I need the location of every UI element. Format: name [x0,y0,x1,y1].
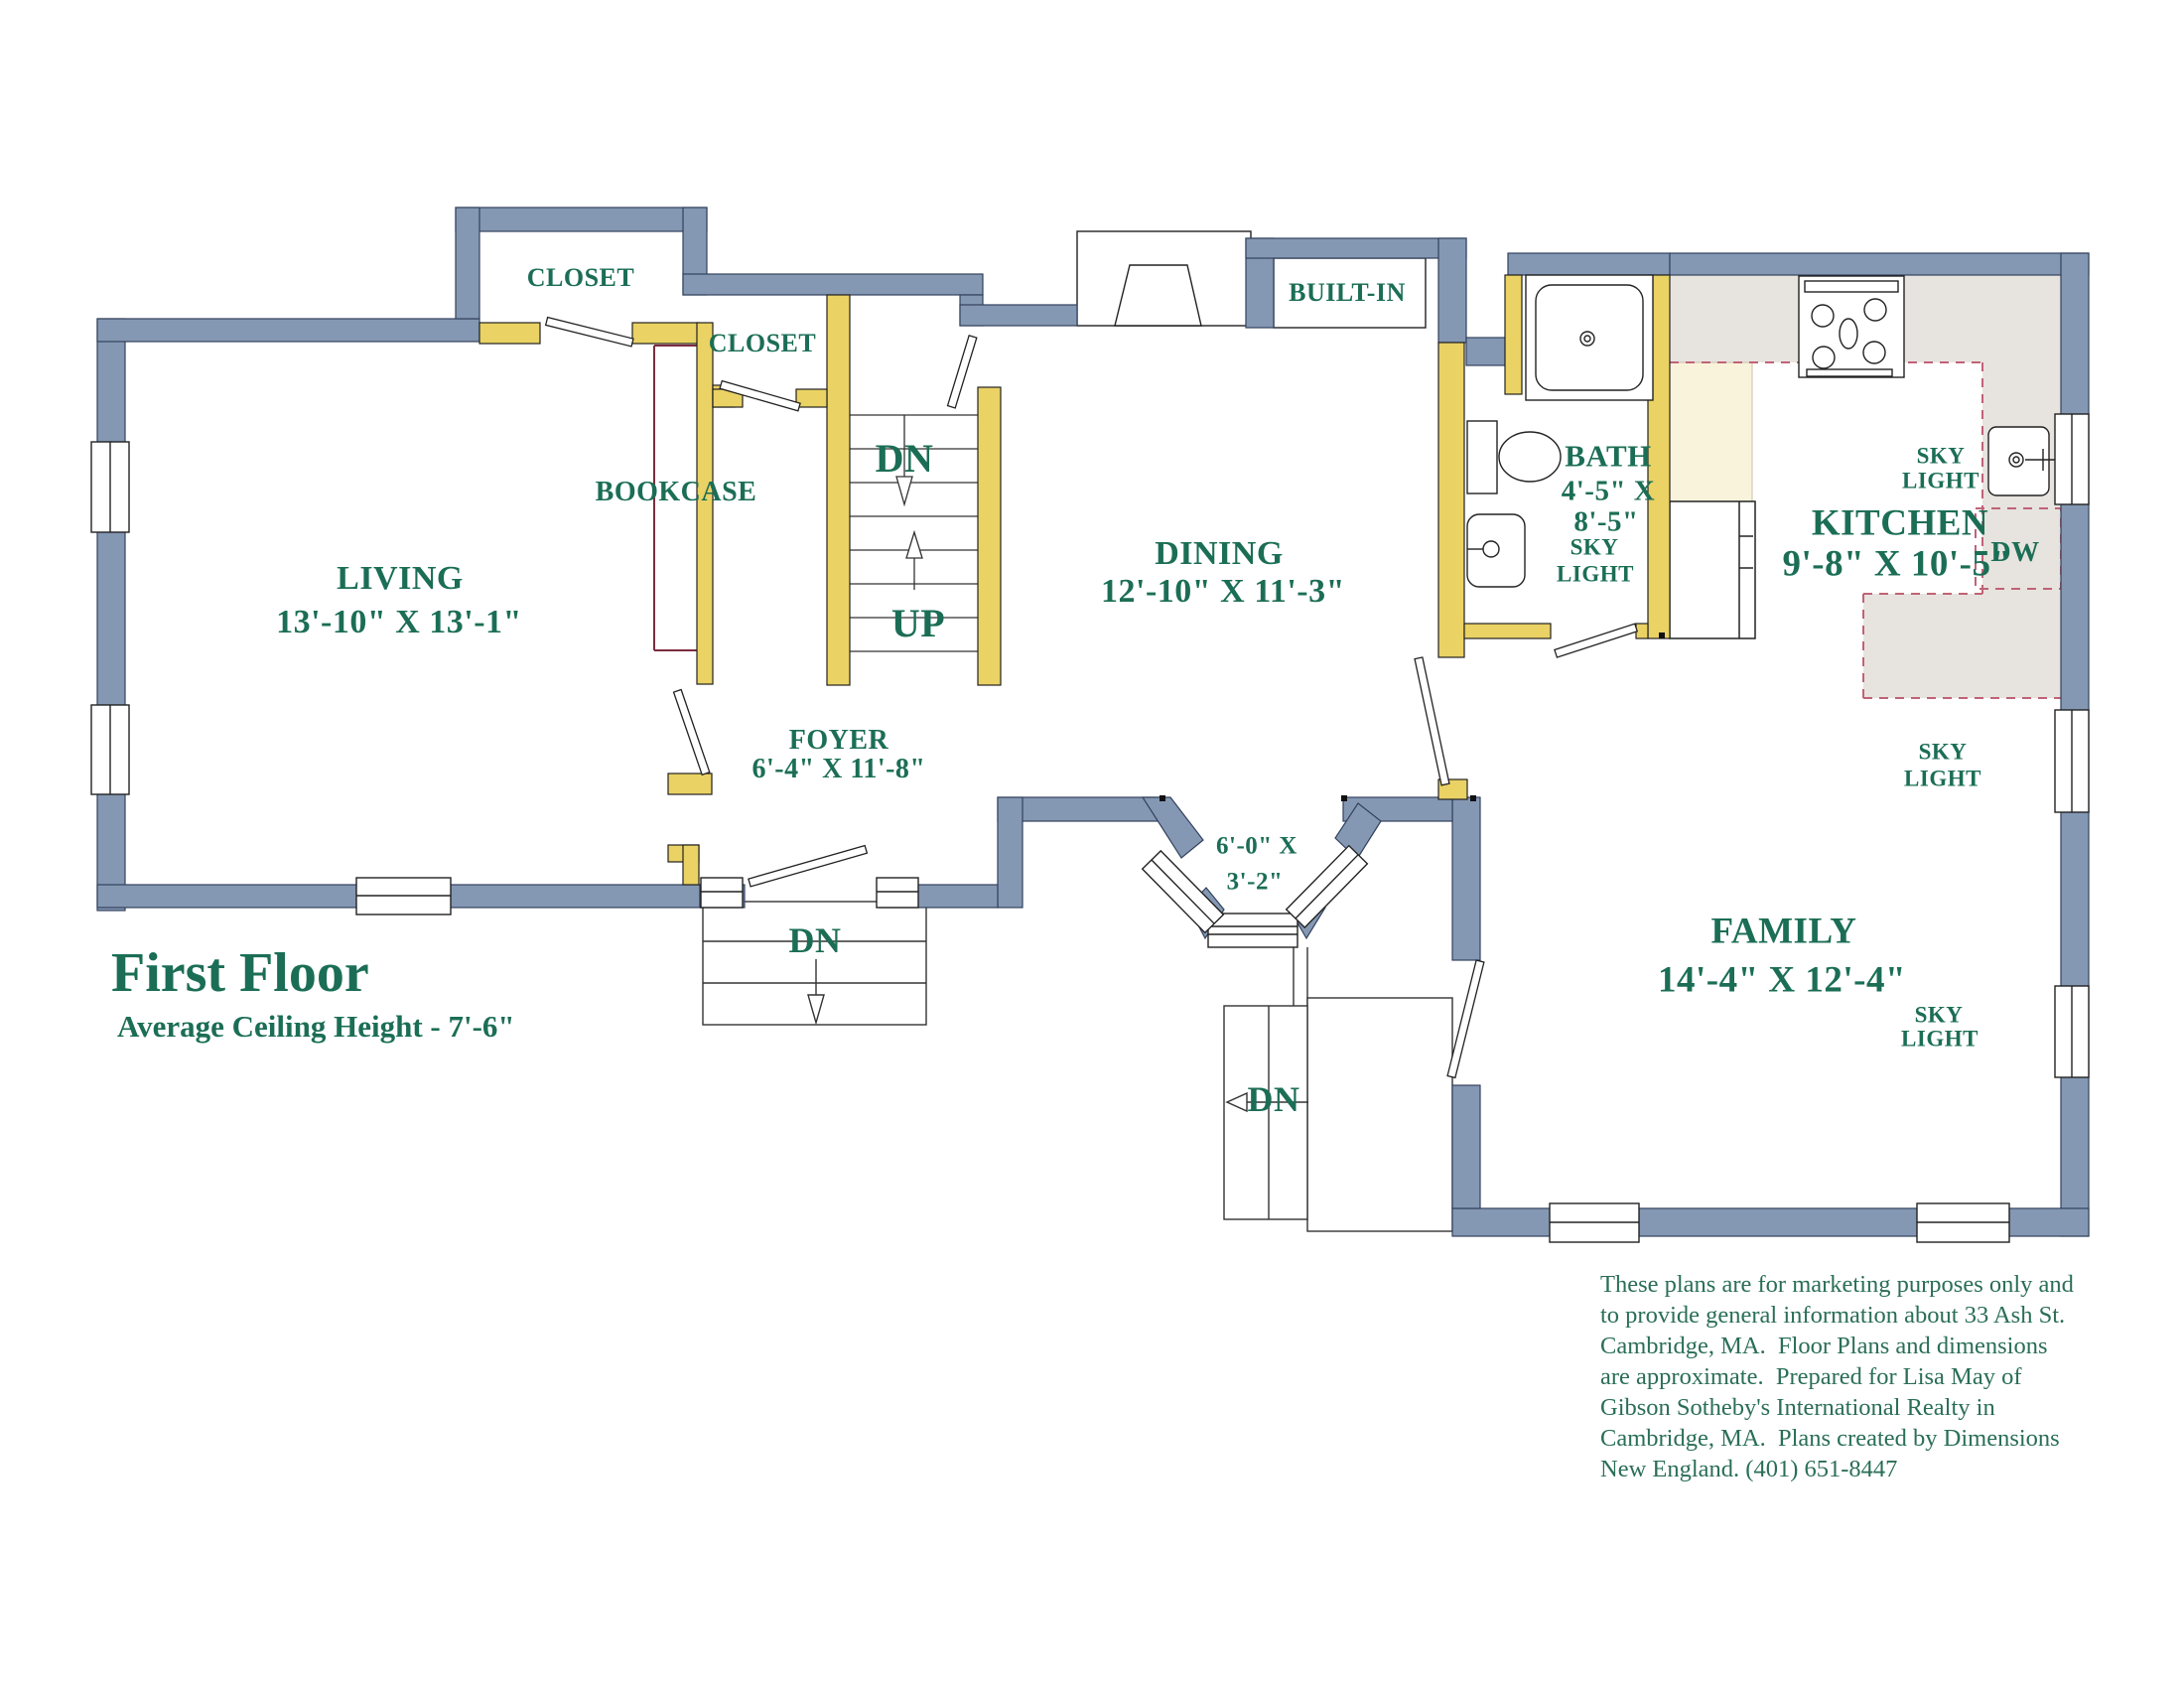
label-skylight-bath-1: SKY [1570,536,1619,559]
room-dims-bath-2: 8'-5" [1573,508,1638,537]
hall-door [1415,657,1449,785]
label-skylight-family1-2: LIGHT [1904,768,1981,790]
disclaimer-line: are approximate. Prepared for Lisa May o… [1600,1361,2136,1392]
fireplace [1077,231,1251,326]
label-skylight-kitchen-1: SKY [1917,445,1966,468]
label-bay-dims-2: 3'-2" [1227,870,1284,895]
room-label-living: LIVING [337,562,464,596]
bay-angled-window [1143,851,1224,932]
label-skylight-bath-2: LIGHT [1557,563,1634,586]
toilet [1467,421,1561,493]
label-side-down: DN [1248,1081,1300,1117]
living-foyer-door [674,689,710,774]
disclaimer-line: Cambridge, MA. Floor Plans and dimension… [1600,1331,2136,1361]
front-entry-door [749,846,867,887]
label-skylight-family2-1: SKY [1915,1004,1964,1027]
refrigerator [1670,501,1755,638]
label-skylight-kitchen-2: LIGHT [1902,470,1979,492]
room-dims-family: 14'-4" X 12'-4" [1658,962,1906,999]
label-closet-foyer: CLOSET [709,331,817,356]
label-skylight-family1-1: SKY [1919,741,1968,764]
label-bay-dims-1: 6'-0" X [1216,834,1297,859]
disclaimer-line: These plans are for marketing purposes o… [1600,1269,2136,1300]
window [2055,986,2089,1077]
label-stairs-down: DN [876,439,934,479]
room-dims-foyer: 6'-4" X 11'-8" [752,756,926,783]
window [2055,414,2089,504]
window [1917,1203,2009,1242]
room-label-family: FAMILY [1711,914,1857,950]
room-dims-bath-1: 4'-5" X [1562,478,1656,506]
label-skylight-family2-2: LIGHT [1901,1028,1979,1051]
page-title: First Floor [111,941,369,1005]
room-label-bath: BATH [1565,441,1652,472]
disclaimer-text: These plans are for marketing purposes o… [1600,1269,2136,1484]
label-entry-down: DN [789,922,842,958]
up-arrow-head [906,532,922,558]
sidelight-window [701,878,743,908]
window [1550,1203,1639,1242]
down-arrow-head [896,477,912,504]
page-subtitle: Average Ceiling Height - 7'-6" [117,1009,515,1045]
bay-front-window [1208,914,1297,947]
bay-wall-stub [1143,797,1203,858]
closet-door [546,318,633,347]
disclaimer-line: Gibson Sotheby's International Realty in [1600,1392,2136,1423]
kitchen-sink [1988,427,2055,495]
disclaimer-line: New England. (401) 651-8447 [1600,1454,2136,1484]
room-dims-dining: 12'-10" X 11'-3" [1101,575,1345,609]
wall-junction-dots [1160,633,1665,801]
window [91,705,129,794]
pantry-cabinet [1670,362,1752,501]
bath-sink [1467,514,1525,587]
room-label-dining: DINING [1155,537,1284,571]
label-built-in: BUILT-IN [1289,280,1406,306]
window [356,878,451,914]
room-dims-kitchen: 9'-8" X 10'-5" [1782,546,2011,583]
bay-angled-window [1287,846,1368,927]
stair-dining-door [948,336,977,408]
shower [1526,275,1653,400]
disclaimer-line: to provide general information about 33 … [1600,1300,2136,1331]
label-dishwasher: DW [1990,539,2039,567]
room-label-foyer: FOYER [789,727,889,755]
sidelight-window [877,878,918,908]
room-dims-living: 13'-10" X 13'-1" [276,606,522,639]
window [91,442,129,532]
windows [91,414,2089,1242]
disclaimer-line: Cambridge, MA. Plans created by Dimensio… [1600,1423,2136,1454]
floor-plan-page: LIVING 13'-10" X 13'-1" DINING 12'-10" X… [0,0,2184,1688]
stove [1799,276,1904,377]
label-bookcase: BOOKCASE [596,479,757,506]
window [2055,710,2089,812]
label-stairs-up: UP [891,604,945,643]
label-closet-top-left: CLOSET [527,265,635,291]
bath-door [1555,624,1637,657]
room-label-kitchen: KITCHEN [1812,505,1988,542]
